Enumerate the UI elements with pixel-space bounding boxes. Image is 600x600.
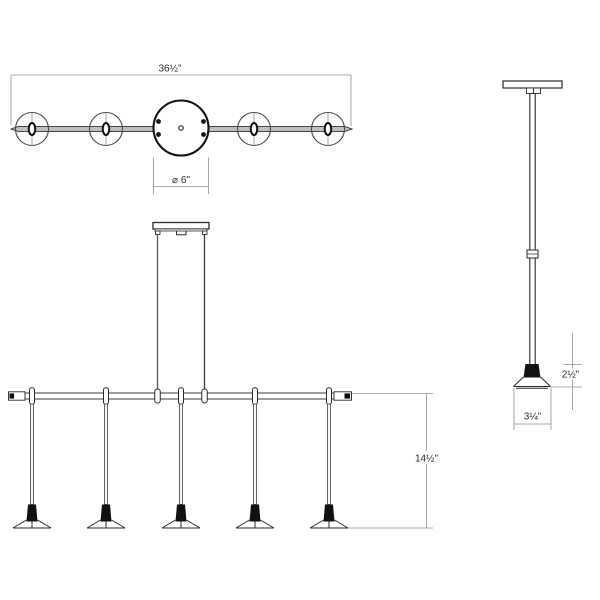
shade-width-dimension: 3¼" [514, 388, 551, 430]
shade-height-dimension: 2½" [550, 333, 585, 410]
canopy-diameter-label: ⌀ 6" [172, 175, 190, 186]
canopy-center-hole [179, 126, 183, 130]
socket-side [524, 364, 541, 378]
drop-height-dimension: 14½" [348, 394, 442, 529]
canopy-circle-plan [154, 101, 209, 156]
pendant-5 [310, 404, 348, 528]
pendant-clamp-5 [327, 388, 332, 405]
canopy-front [153, 223, 209, 235]
overall-width-label: 36½" [158, 64, 181, 75]
drawing-page: 36½" ⌀ 6" [0, 0, 600, 600]
pendant-3 [162, 404, 200, 528]
pendant-clamp-4 [253, 388, 258, 405]
stem-connector-left [155, 389, 161, 403]
pendant-clamp-3 [179, 388, 184, 405]
canopy-notch [177, 231, 187, 235]
shade-side [514, 364, 551, 388]
pendant-clamp-2 [104, 388, 109, 405]
stem-side [527, 94, 538, 365]
front-view: 14½" [9, 223, 442, 529]
dimension-drawing-canvas: 36½" ⌀ 6" [0, 0, 600, 600]
drop-height-label: 14½" [415, 454, 438, 465]
side-view: 2½" 3¼" [503, 81, 585, 430]
pendant-2 [87, 404, 125, 528]
pendant-1 [13, 404, 51, 528]
shade-width-label: 3¼" [524, 411, 542, 423]
pendant-clamp-1 [30, 388, 35, 405]
stem-connector-right [202, 389, 208, 403]
pendant-4 [236, 404, 274, 528]
canopy-diameter-dimension: ⌀ 6" [154, 158, 209, 195]
top-view: 36½" ⌀ 6" [11, 64, 352, 195]
canopy-side [503, 81, 562, 94]
shade-height-label: 2½" [562, 370, 580, 381]
